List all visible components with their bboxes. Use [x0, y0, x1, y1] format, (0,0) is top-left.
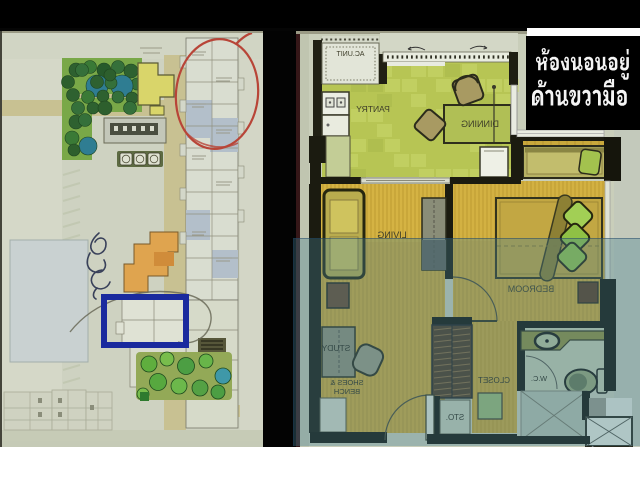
- svg-text:PANTRY: PANTRY: [356, 104, 390, 114]
- svg-text:AC.UNIT: AC.UNIT: [336, 51, 365, 58]
- svg-text:DINNING: DINNING: [461, 119, 499, 129]
